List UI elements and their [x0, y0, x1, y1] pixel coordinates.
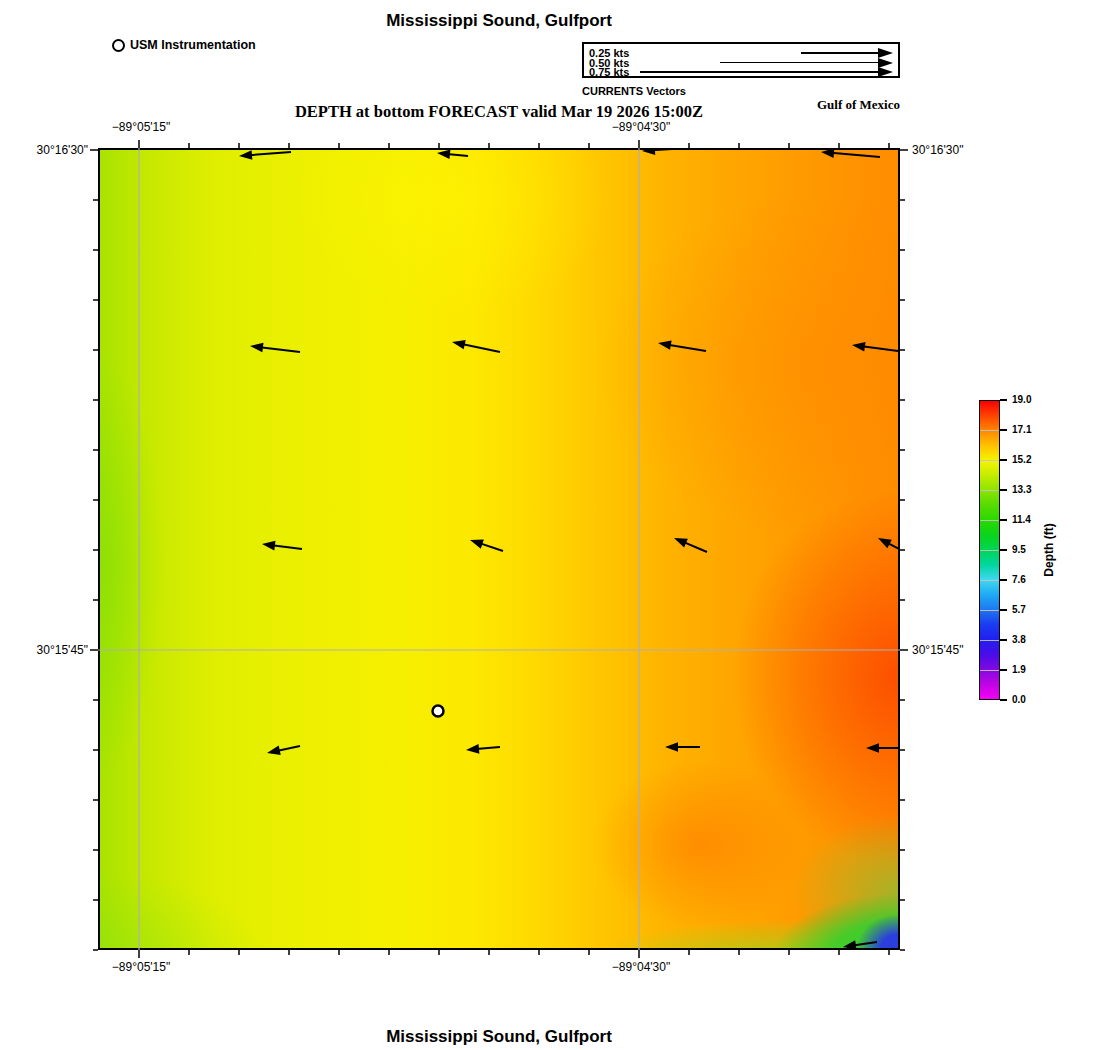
current-vector-arrowhead-icon: [866, 743, 879, 753]
current-vector-arrowhead-icon: [658, 340, 672, 349]
current-vector-arrowhead-icon: [262, 541, 275, 551]
current-vector-arrowhead-icon: [642, 148, 655, 155]
legend-arrow-line: [640, 71, 880, 73]
instrumentation-legend: USM Instrumentation: [112, 37, 256, 53]
current-vector-shaft: [462, 344, 500, 352]
legend-arrowhead-icon: [878, 67, 893, 77]
colorbar-tick-label: 13.3: [1012, 484, 1031, 495]
colorbar-level-line: [980, 520, 999, 521]
current-vector-shaft: [260, 347, 300, 352]
usm-station-marker: [433, 706, 444, 717]
colorbar-title: Depth (ft): [1042, 490, 1056, 610]
current-vector-shaft: [831, 153, 880, 157]
legend-arrow-line: [801, 52, 880, 54]
colorbar-tick-label: 15.2: [1012, 454, 1031, 465]
current-vector-arrowhead-icon: [665, 742, 678, 752]
page-title: Mississippi Sound, Gulfport: [98, 11, 900, 31]
current-vector-shaft: [272, 545, 302, 549]
lat-tick-label-left-bottom: 30°15'45": [0, 643, 88, 657]
colorbar-tick-label: 5.7: [1012, 604, 1026, 615]
colorbar-tick: [1000, 609, 1007, 611]
current-vector-arrowhead-icon: [239, 150, 252, 160]
colorbar-tick: [1000, 699, 1007, 701]
current-vector-arrowhead-icon: [878, 538, 892, 548]
colorbar-tick: [1000, 519, 1007, 521]
colorbar-tick: [1000, 639, 1007, 641]
colorbar-tick: [1000, 489, 1007, 491]
colorbar-tick-label: 9.5: [1012, 544, 1026, 555]
lon-tick-label-top-left: −89°05'15": [112, 120, 170, 134]
colorbar-level-line: [980, 580, 999, 581]
current-vector-shaft: [652, 148, 688, 150]
bottom-title: Mississippi Sound, Gulfport: [98, 1027, 900, 1047]
current-vector-shaft: [249, 152, 291, 155]
colorbar-tick-label: 0.0: [1012, 694, 1026, 705]
colorbar-level-line: [980, 430, 999, 431]
current-vector-arrowhead-icon: [470, 540, 484, 549]
colorbar-tick: [1000, 669, 1007, 671]
lat-tick-label-right-top: 30°16'30": [912, 143, 963, 157]
lat-tick-label-right-bottom: 30°15'45": [912, 643, 963, 657]
current-vector-arrowhead-icon: [821, 148, 834, 158]
current-vector-arrowhead-icon: [452, 340, 466, 349]
lon-tick-label-bottom-left: −89°05'15": [112, 960, 170, 974]
region-label: Gulf of Mexico: [760, 97, 900, 113]
lon-tick-label-bottom-right: −89°04'30": [612, 960, 670, 974]
colorbar-level-line: [980, 640, 999, 641]
current-vector-shaft: [476, 747, 500, 749]
colorbar-level-line: [980, 550, 999, 551]
station-marker-icon: [112, 39, 125, 52]
current-vector-arrowhead-icon: [674, 538, 688, 547]
colorbar-level-line: [980, 460, 999, 461]
current-vector-shaft: [668, 345, 706, 351]
legend-arrow-line: [720, 62, 880, 64]
current-vector-shaft: [862, 346, 900, 352]
colorbar-tick-label: 17.1: [1012, 424, 1031, 435]
colorbar-tick: [1000, 549, 1007, 551]
colorbar-tick: [1000, 429, 1007, 431]
current-vector-arrowhead-icon: [267, 746, 281, 755]
current-vector-shaft: [479, 543, 503, 551]
colorbar-level-line: [980, 670, 999, 671]
current-vector-arrowhead-icon: [843, 940, 857, 949]
colorbar-tick-label: 7.6: [1012, 574, 1026, 585]
current-vector-shaft: [853, 942, 877, 946]
current-vector-arrowhead-icon: [466, 744, 479, 754]
colorbar-level-line: [980, 610, 999, 611]
colorbar-tick: [1000, 399, 1007, 401]
instrumentation-label: USM Instrumentation: [130, 38, 256, 52]
colorbar-tick-label: 11.4: [1012, 514, 1031, 525]
colorbar-tick-label: 3.8: [1012, 634, 1026, 645]
colorbar-tick-label: 1.9: [1012, 664, 1026, 675]
colorbar-level-line: [980, 490, 999, 491]
colorbar-tick: [1000, 459, 1007, 461]
legend-arrowhead-icon: [878, 58, 893, 68]
vector-field-overlay: [98, 148, 900, 950]
colorbar-tick: [1000, 579, 1007, 581]
current-vector-arrowhead-icon: [437, 149, 450, 159]
currents-speed-legend: 0.25 kts 0.50 kts 0.75 kts: [582, 42, 900, 78]
figure: Mississippi Sound, Gulfport USM Instrume…: [0, 0, 1100, 1050]
current-vector-shaft: [277, 746, 300, 751]
current-vector-shaft: [447, 154, 468, 156]
colorbar-tick-label: 19.0: [1012, 394, 1031, 405]
legend-arrowhead-icon: [878, 48, 893, 58]
currents-legend-caption: CURRENTS Vectors: [582, 85, 686, 97]
current-vector-arrowhead-icon: [852, 342, 866, 352]
legend-speed-label: 0.75 kts: [589, 67, 629, 77]
current-vector-arrowhead-icon: [250, 343, 263, 353]
lon-tick-label-top-right: −89°04'30": [612, 120, 670, 134]
current-vector-shaft: [683, 542, 707, 552]
lat-tick-label-left-top: 30°16'30": [0, 143, 88, 157]
